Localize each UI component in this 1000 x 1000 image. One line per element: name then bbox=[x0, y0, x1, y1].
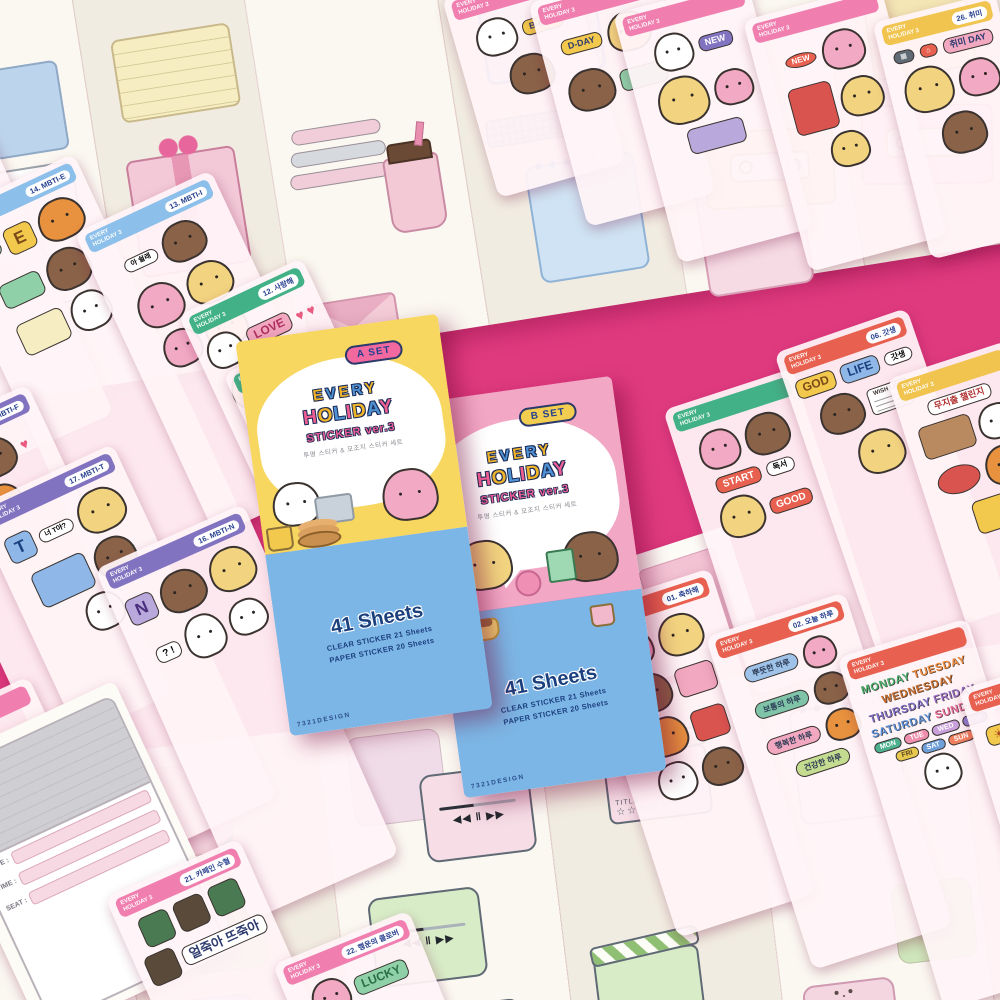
dog-character bbox=[652, 607, 709, 661]
cat-memo-sticker bbox=[801, 976, 903, 1000]
letter-sticker: E bbox=[1, 219, 39, 257]
new-badge-sticker: NEW bbox=[696, 29, 734, 53]
iced-drink-sticker bbox=[143, 946, 185, 988]
sheet-header-title: EVERY HOLIDAY 3 bbox=[851, 651, 897, 676]
mug-illustration bbox=[589, 603, 616, 628]
bunny-character bbox=[954, 53, 1000, 100]
stocking-sticker bbox=[688, 702, 732, 744]
day-banner-sticker: 건강한 하루 bbox=[794, 746, 852, 779]
blue-note-sticker bbox=[0, 59, 70, 164]
bunny-character bbox=[710, 64, 758, 109]
yarn-ball-illustration bbox=[514, 569, 543, 598]
iced-drink-sticker bbox=[136, 907, 178, 949]
sheet-header-title: EVERY HOLIDAY 3 bbox=[677, 402, 723, 428]
clapper-title: TITLE bbox=[606, 992, 696, 1000]
speech-bubble-sticker: 너 T야? bbox=[36, 517, 75, 545]
piggy-bank-sticker bbox=[934, 459, 984, 499]
duck-character bbox=[919, 748, 966, 794]
box-a-top-panel: A SET EVERY HOLIDAY STICKER ver.3 투명 스티커… bbox=[235, 314, 467, 556]
brand-name: 7321DESIGN bbox=[471, 773, 526, 790]
clapperboard-sticker-green: TITLE ☆☆☆☆☆ bbox=[592, 944, 706, 1000]
dog-character bbox=[714, 489, 771, 543]
dog-character bbox=[899, 60, 959, 117]
clapperboard-mini-sticker: ▦ bbox=[892, 48, 915, 66]
dog-character bbox=[652, 70, 715, 130]
iced-drink-sticker bbox=[205, 876, 247, 918]
ticket-time-label: TIME : bbox=[0, 878, 18, 893]
letter-sticker: T bbox=[2, 528, 40, 565]
box-a-bottom-panel: 41 Sheets CLEAR STICKER 21 Sheets PAPER … bbox=[265, 527, 492, 736]
speech-bubble-sticker: 아 쉴래 bbox=[123, 247, 160, 274]
letter-sticker: N bbox=[122, 590, 161, 628]
cat-face bbox=[848, 989, 852, 993]
sheet-header-title: EVERY HOLIDAY 3 bbox=[901, 371, 947, 397]
bunny-character bbox=[798, 631, 840, 672]
sheet-label: 26. 취미 bbox=[950, 5, 988, 26]
popcorn-sticker: ⌂ bbox=[918, 42, 939, 59]
sun-sticker: ☀ bbox=[984, 720, 1000, 747]
b-set-badge: B SET bbox=[518, 401, 579, 428]
ticket-date-label: DATE : bbox=[0, 857, 10, 873]
sheet-label: 06. 갓생 bbox=[864, 321, 903, 345]
lined-note-sticker bbox=[110, 22, 242, 124]
ghost-character bbox=[177, 607, 233, 664]
heart-stickers: ♥ ♥ bbox=[293, 302, 318, 323]
day-banner-sticker: 뿌듯한 하루 bbox=[742, 651, 800, 684]
sheet-header-title: EVERY HOLIDAY 3 bbox=[627, 9, 673, 33]
good-word-sticker: GOOD bbox=[767, 485, 815, 515]
brand-name: 7321DESIGN bbox=[297, 711, 352, 728]
phone-booth-sticker bbox=[786, 80, 841, 138]
new-starburst-sticker: NEW bbox=[783, 49, 818, 71]
bunny-character bbox=[379, 465, 442, 524]
sheet-header-title: EVERY HOLIDAY 3 bbox=[973, 683, 1000, 708]
player-controls: ◀◀ ‖ ▶▶ bbox=[452, 807, 506, 826]
dog-character bbox=[69, 479, 133, 540]
dog-character bbox=[826, 126, 874, 171]
laptop-illustration bbox=[314, 493, 356, 526]
lucky-word-sticker: LUCKY bbox=[352, 958, 411, 997]
bear-character bbox=[697, 741, 749, 790]
bear-character bbox=[814, 387, 871, 440]
hobby-word-sticker: 취미 DAY bbox=[941, 27, 995, 55]
bunny-character bbox=[693, 423, 745, 474]
iced-coffee-cup-sticker bbox=[382, 151, 449, 235]
note-sticker bbox=[14, 306, 74, 358]
bear-character bbox=[153, 562, 214, 620]
sheet-label: 01. 축하해 bbox=[660, 581, 705, 607]
dog-character bbox=[202, 539, 264, 599]
life-word-sticker: LIFE bbox=[838, 353, 882, 385]
ticket-seat-label: SEAT : bbox=[5, 897, 28, 913]
duck-character bbox=[471, 13, 522, 61]
mug-illustration bbox=[266, 526, 295, 553]
bunny-character bbox=[817, 24, 870, 74]
product-photo-scene: ◀◀ ‖ ▶▶ ◀◀ ‖ ▶▶ ◀◀ ‖ ▶▶ TITLE ☆☆☆☆☆ TITL… bbox=[0, 0, 1000, 1000]
green-book-illustration bbox=[545, 548, 577, 584]
paper-bag-sticker bbox=[970, 489, 1000, 535]
dday-badge-sticker: D-DAY bbox=[559, 31, 603, 57]
day-pill-sticker: FRI bbox=[894, 745, 919, 762]
heart-sticker: ♥ bbox=[18, 436, 31, 452]
cupcake-sticker bbox=[672, 658, 719, 699]
day-banner-sticker: 행복한 하루 bbox=[765, 723, 823, 756]
bear-character bbox=[937, 106, 992, 158]
tag-sticker: 대문자 bbox=[0, 240, 4, 268]
bear-character bbox=[563, 63, 620, 116]
day-banner-sticker: 보통의 하루 bbox=[753, 687, 811, 720]
sheet-header-title: EVERY HOLIDAY 3 bbox=[757, 15, 803, 39]
cat-character bbox=[973, 397, 1000, 444]
bear-character bbox=[739, 406, 796, 460]
sheet-header-title: EVERY HOLIDAY 3 bbox=[542, 0, 588, 22]
dog-character bbox=[836, 70, 889, 120]
duck-character bbox=[649, 28, 697, 75]
cardboard-box-sticker bbox=[916, 412, 978, 461]
iced-drink-sticker bbox=[171, 892, 213, 934]
tiger-character bbox=[980, 438, 1000, 490]
a-set-badge: A SET bbox=[344, 339, 404, 366]
sheet-header-title: EVERY HOLIDAY 3 bbox=[720, 629, 766, 655]
question-sticker: ? ! bbox=[153, 639, 184, 665]
globe-sticker bbox=[0, 269, 48, 311]
sheet-header-title: EVERY HOLIDAY 3 bbox=[886, 18, 932, 41]
reading-tag-sticker: 독서 bbox=[764, 455, 796, 478]
cat-character bbox=[223, 592, 274, 641]
godsaeng-tag-sticker: 갓생 bbox=[882, 344, 914, 367]
